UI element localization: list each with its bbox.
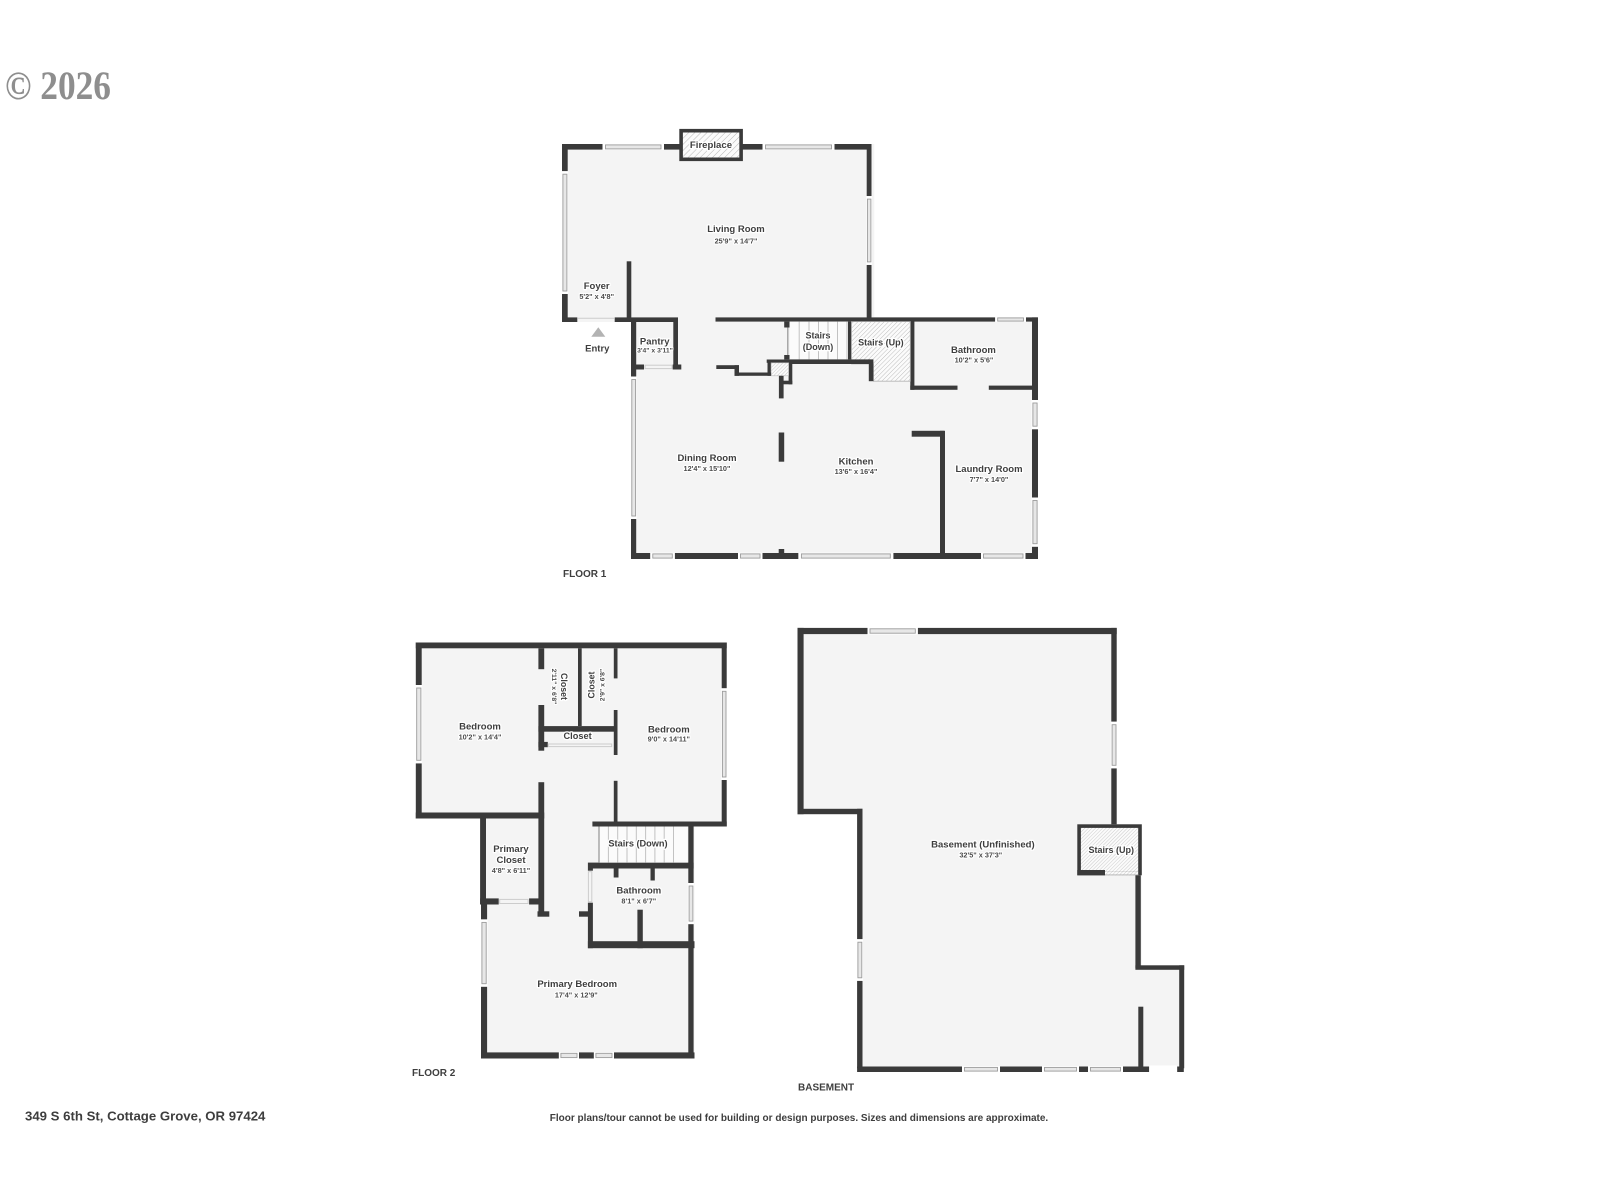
svg-text:BASEMENT: BASEMENT: [798, 1083, 854, 1094]
svg-text:Bedroom: Bedroom: [459, 722, 501, 733]
svg-text:Basement (Unfinished): Basement (Unfinished): [931, 839, 1034, 850]
svg-text:9'0" x 14'11": 9'0" x 14'11": [648, 735, 690, 744]
svg-text:Closet: Closet: [587, 671, 597, 698]
svg-text:© 2026: © 2026: [5, 63, 111, 108]
svg-text:Fireplace: Fireplace: [690, 140, 732, 151]
svg-text:Laundry Room: Laundry Room: [955, 464, 1022, 475]
svg-text:Stairs: Stairs: [805, 331, 830, 341]
svg-text:5'2" x 4'8": 5'2" x 4'8": [579, 292, 614, 301]
svg-text:13'6" x 16'4": 13'6" x 16'4": [835, 467, 878, 476]
svg-text:12'4" x 15'10": 12'4" x 15'10": [684, 464, 731, 473]
svg-text:Kitchen: Kitchen: [839, 457, 874, 468]
svg-text:Bedroom: Bedroom: [648, 724, 690, 735]
svg-text:Primary Bedroom: Primary Bedroom: [537, 979, 617, 990]
svg-text:Stairs (Down): Stairs (Down): [608, 839, 667, 849]
svg-text:25'9" x 14'7": 25'9" x 14'7": [715, 236, 758, 245]
svg-text:Foyer: Foyer: [584, 281, 610, 292]
svg-text:(Down): (Down): [803, 342, 834, 352]
svg-text:Floor plans/tour cannot be use: Floor plans/tour cannot be used for buil…: [550, 1113, 1049, 1124]
svg-text:349 S 6th St, Cottage Grove, O: 349 S 6th St, Cottage Grove, OR 97424: [25, 1109, 266, 1124]
svg-text:4'8" x 6'11": 4'8" x 6'11": [492, 866, 530, 875]
svg-text:Bathroom: Bathroom: [951, 345, 996, 356]
svg-text:FLOOR 2: FLOOR 2: [412, 1068, 456, 1079]
svg-text:3'4" x 3'11": 3'4" x 3'11": [637, 347, 673, 354]
svg-text:Closet: Closet: [496, 855, 526, 866]
svg-text:10'2" x 14'4": 10'2" x 14'4": [459, 733, 502, 742]
svg-text:17'4" x 12'9": 17'4" x 12'9": [555, 991, 598, 1000]
svg-text:7'7" x 14'0": 7'7" x 14'0": [970, 475, 1009, 484]
svg-text:FLOOR 1: FLOOR 1: [563, 569, 607, 580]
svg-text:Closet: Closet: [564, 731, 592, 741]
svg-text:Primary: Primary: [493, 844, 529, 855]
svg-text:Closet: Closet: [559, 673, 569, 700]
svg-text:32'5" x 37'3": 32'5" x 37'3": [959, 850, 1002, 859]
svg-text:Stairs (Up): Stairs (Up): [1088, 845, 1134, 855]
svg-text:Pantry: Pantry: [640, 336, 670, 347]
svg-text:Entry: Entry: [585, 344, 610, 355]
svg-text:Living Room: Living Room: [707, 224, 765, 235]
svg-text:Stairs (Up): Stairs (Up): [858, 338, 904, 348]
svg-text:10'2" x 5'6": 10'2" x 5'6": [955, 356, 994, 365]
svg-text:Dining Room: Dining Room: [677, 453, 736, 464]
svg-text:Bathroom: Bathroom: [616, 886, 661, 897]
svg-text:2'9" x 6'8": 2'9" x 6'8": [599, 669, 606, 701]
svg-text:2'11" x 6'8": 2'11" x 6'8": [550, 669, 557, 705]
svg-text:8'1" x 6'7": 8'1" x 6'7": [621, 897, 656, 906]
